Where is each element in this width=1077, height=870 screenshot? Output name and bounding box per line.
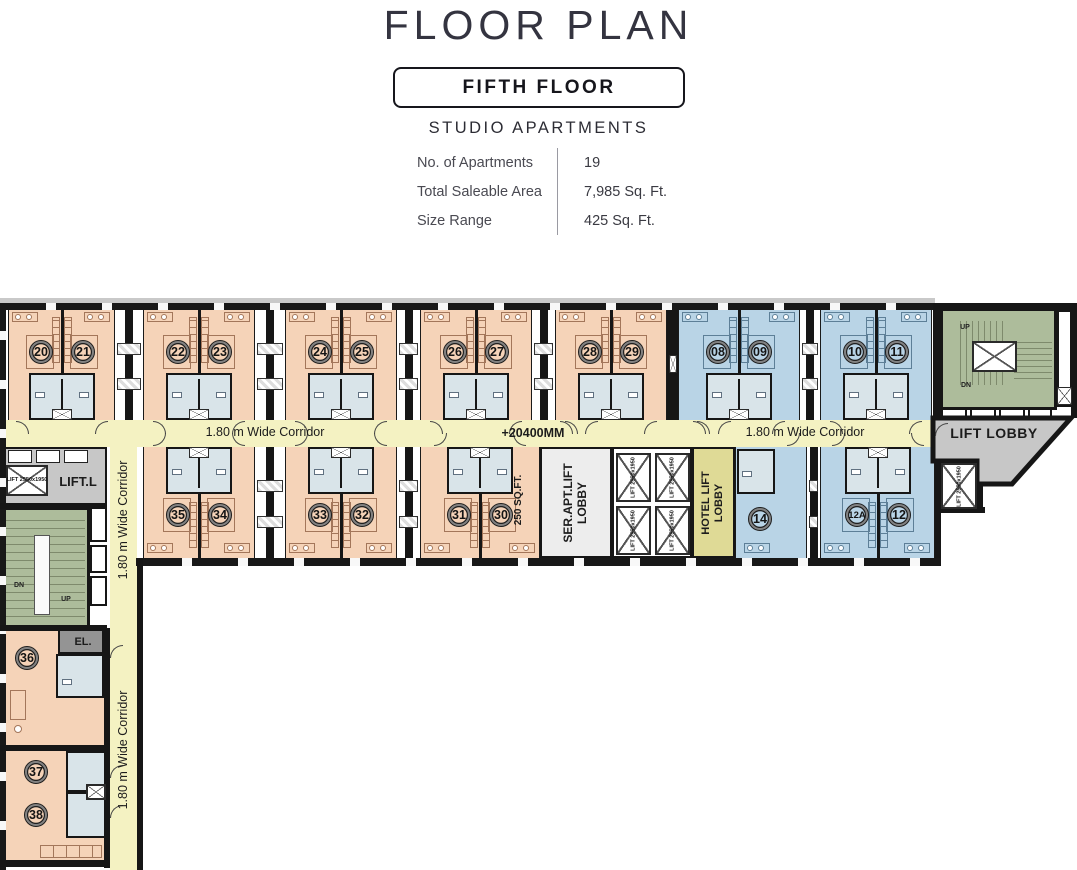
plan-shape xyxy=(712,392,722,398)
plan-shape xyxy=(696,314,702,320)
plan-shape xyxy=(98,314,104,320)
spec-value: 425 Sq. Ft. xyxy=(557,206,667,235)
plan-shape xyxy=(405,447,413,558)
lift-shaft xyxy=(189,409,209,420)
lift-shaft xyxy=(972,341,1017,372)
plan-shape xyxy=(399,378,418,390)
floor-label: FIFTH FLOOR xyxy=(462,77,615,99)
plan-shape xyxy=(534,378,553,390)
plan-shape xyxy=(216,469,226,475)
plan-shape xyxy=(40,845,102,858)
room-number-24: 24 xyxy=(308,340,332,364)
plan-shape xyxy=(0,745,107,751)
room-number-21: 21 xyxy=(71,340,95,364)
plan-shape xyxy=(150,314,156,320)
plan-shape xyxy=(493,392,503,398)
spec-table: No. of Apartments 19 Total Saleable Area… xyxy=(417,148,667,235)
spec-value: 19 xyxy=(557,148,667,177)
room-number-23: 23 xyxy=(208,340,232,364)
stair-dn-label-left: DN xyxy=(8,579,30,591)
plan-shape xyxy=(405,310,413,420)
exterior-wall-left xyxy=(0,303,6,870)
plan-shape xyxy=(809,480,818,492)
room-number-22: 22 xyxy=(166,340,190,364)
plan-shape xyxy=(303,314,309,320)
room-number-27: 27 xyxy=(485,340,509,364)
spec-value: 7,985 Sq. Ft. xyxy=(557,177,667,206)
plan-shape xyxy=(172,392,182,398)
plan-shape xyxy=(685,314,691,320)
plan-shape xyxy=(512,545,518,551)
plan-shape xyxy=(827,314,833,320)
plan-shape xyxy=(907,545,913,551)
plan-shape xyxy=(918,545,924,551)
plan-shape xyxy=(650,314,656,320)
exterior-wall-top xyxy=(0,303,940,310)
plan-shape xyxy=(758,545,764,551)
plan-shape xyxy=(117,343,141,355)
room-number-35: 35 xyxy=(166,503,190,527)
plan-shape xyxy=(756,392,766,398)
plan-shape xyxy=(257,378,283,390)
room-number-10: 10 xyxy=(843,340,867,364)
spec-label: Size Range xyxy=(417,206,557,235)
plan-shape xyxy=(438,314,444,320)
plan-shape xyxy=(0,860,110,867)
spec-label: No. of Apartments xyxy=(417,148,557,177)
spec-label: Total Saleable Area xyxy=(417,177,557,206)
floor-plan: 1.80 m Wide Corridor +20400MM 1.80 m Wid… xyxy=(0,295,1077,870)
plan-shape xyxy=(893,392,903,398)
plan-shape xyxy=(904,314,910,320)
stair-up-label-left: UP xyxy=(55,593,77,605)
room-number-30: 30 xyxy=(489,503,513,527)
lift-shaft xyxy=(466,409,486,420)
room-number-25: 25 xyxy=(350,340,374,364)
plan-shape xyxy=(137,558,143,870)
room-number-29: 29 xyxy=(620,340,644,364)
lift-shaft xyxy=(868,447,888,458)
plan-shape xyxy=(87,314,93,320)
plan-shape xyxy=(534,343,553,355)
plan-shape xyxy=(369,545,375,551)
ser-apt-line1: SER.APT.LIFT xyxy=(562,463,576,542)
lift-shaft xyxy=(669,355,677,373)
corridor-label-right: 1.80 m Wide Corridor xyxy=(725,423,885,441)
plan-shape xyxy=(64,450,88,463)
room-number-34: 34 xyxy=(208,503,232,527)
plan-shape xyxy=(216,392,226,398)
plan-shape xyxy=(161,314,167,320)
plan-shape xyxy=(257,516,283,528)
room-number-26: 26 xyxy=(443,340,467,364)
plan-shape xyxy=(438,545,444,551)
lift-shaft xyxy=(331,447,351,458)
plan-shape xyxy=(35,392,45,398)
plan-shape xyxy=(266,310,274,420)
plan-shape xyxy=(303,545,309,551)
plan-shape xyxy=(809,516,818,528)
plan-shape xyxy=(380,314,386,320)
plan-shape xyxy=(540,310,548,420)
plan-shape xyxy=(257,343,283,355)
room-number-14: 14 xyxy=(748,507,772,531)
plan-shape xyxy=(90,507,107,542)
plan-shape xyxy=(0,625,107,631)
stair-dn-label-right: DN xyxy=(955,379,977,391)
plan-shape xyxy=(117,378,141,390)
plan-shape xyxy=(26,314,32,320)
hotel-line1: HOTEL LIFT xyxy=(700,471,713,534)
room-number-33: 33 xyxy=(308,503,332,527)
plan-shape xyxy=(150,545,156,551)
lift-l-label: LIFT.L xyxy=(50,471,106,491)
room-number-31: 31 xyxy=(447,503,471,527)
hotel-line2: LOBBY xyxy=(713,484,726,523)
plan-shape xyxy=(238,314,244,320)
plan-shape xyxy=(562,314,568,320)
plan-shape xyxy=(639,314,645,320)
plan-shape xyxy=(292,314,298,320)
ser-apt-line2: LOBBY xyxy=(576,482,590,524)
plan-shape xyxy=(573,314,579,320)
corridor-label-left: 1.80 m Wide Corridor xyxy=(185,423,345,441)
plan-shape xyxy=(584,392,594,398)
plan-shape xyxy=(227,314,233,320)
plan-shape xyxy=(62,679,72,685)
plan-shape xyxy=(747,545,753,551)
ser-apt-lift-lobby-label: SER.APT.LIFT LOBBY xyxy=(561,443,591,563)
plan-shape xyxy=(292,545,298,551)
plan-shape xyxy=(802,378,818,390)
lift-shaft xyxy=(86,784,106,800)
plan-shape xyxy=(358,469,368,475)
plan-shape xyxy=(257,480,283,492)
plan-shape xyxy=(125,310,133,420)
lift-size-label: LIFT 2550x1950 xyxy=(955,465,964,507)
lift-shaft xyxy=(1057,387,1072,405)
plan-shape xyxy=(628,392,638,398)
lift-size-label: LIFT 2550x1950 xyxy=(6,476,48,485)
plan-shape xyxy=(15,314,21,320)
plan-shape xyxy=(14,725,22,733)
plan-shape xyxy=(838,545,844,551)
plan-shape xyxy=(161,545,167,551)
plan-shape xyxy=(523,545,529,551)
lift-shaft xyxy=(601,409,621,420)
plan-shape xyxy=(449,392,459,398)
plan-shape xyxy=(933,303,1071,310)
plan-shape xyxy=(1014,337,1052,383)
plan-shape xyxy=(783,314,789,320)
page-title: FLOOR PLAN xyxy=(0,2,1077,49)
corridor-label-vertical-lower: 1.80 m Wide Corridor xyxy=(116,690,130,810)
plan-shape xyxy=(427,545,433,551)
plan-shape xyxy=(227,545,233,551)
plan-shape xyxy=(806,310,814,420)
plan-shape xyxy=(314,469,324,475)
plan-shape xyxy=(838,314,844,320)
plan-shape xyxy=(515,314,521,320)
plan-shape xyxy=(56,654,104,698)
plan-shape xyxy=(8,450,32,463)
plan-shape xyxy=(172,469,182,475)
lift-shaft xyxy=(470,447,490,458)
lift-size-label: LIFT 2550x1950 xyxy=(629,456,638,498)
plan-shape xyxy=(933,310,941,420)
plan-shape xyxy=(90,545,107,573)
hotel-lift-lobby-label: HOTEL LIFT LOBBY xyxy=(698,443,728,563)
unit-area-label: 250 SQ.FT. xyxy=(512,465,524,535)
corridor-label-vertical-upper: 1.80 m Wide Corridor xyxy=(116,460,130,580)
corridor-dimension-label: +20400MM xyxy=(453,424,613,442)
room-number-12A: 12A xyxy=(845,503,869,527)
room-number-32: 32 xyxy=(350,503,374,527)
lift-size-label: LIFT 2550x1950 xyxy=(668,456,677,498)
room-number-36: 36 xyxy=(15,646,39,670)
plan-shape xyxy=(810,447,818,558)
plan-shape xyxy=(34,535,50,615)
plan-shape xyxy=(238,545,244,551)
plan-shape xyxy=(266,447,274,558)
floor-selector-box[interactable]: FIFTH FLOOR xyxy=(393,67,685,108)
plan-shape xyxy=(895,469,905,475)
room-number-11: 11 xyxy=(885,340,909,364)
header: FLOOR PLAN FIFTH FLOOR STUDIO APARTMENTS… xyxy=(0,0,1077,295)
lift-lobby-label: LIFT LOBBY xyxy=(936,424,1052,442)
plan-shape xyxy=(36,450,60,463)
plan-shape xyxy=(772,314,778,320)
plan-shape xyxy=(399,516,418,528)
plan-shape xyxy=(453,469,463,475)
plan-shape xyxy=(915,314,921,320)
room-number-20: 20 xyxy=(29,340,53,364)
lift-shaft xyxy=(729,409,749,420)
lift-shaft xyxy=(331,409,351,420)
plan-shape xyxy=(399,343,418,355)
room-number-12: 12 xyxy=(887,503,911,527)
plan-shape xyxy=(504,314,510,320)
room-number-09: 09 xyxy=(748,340,772,364)
lift-shaft xyxy=(189,447,209,458)
lift-shaft xyxy=(866,409,886,420)
plan-shape xyxy=(358,392,368,398)
plan-shape xyxy=(827,545,833,551)
room-number-28: 28 xyxy=(578,340,602,364)
plan-shape xyxy=(742,471,752,477)
room-number-38: 38 xyxy=(24,803,48,827)
plan-shape xyxy=(851,469,861,475)
plan-shape xyxy=(849,392,859,398)
stair-up-label-right: UP xyxy=(954,321,976,333)
plan-shape xyxy=(79,392,89,398)
lift-shaft xyxy=(52,409,72,420)
plan-shape xyxy=(0,503,107,509)
plan-shape xyxy=(380,545,386,551)
plan-shape xyxy=(314,392,324,398)
el-room-label: EL. xyxy=(62,633,104,651)
room-number-37: 37 xyxy=(24,760,48,784)
plan-shape xyxy=(497,469,507,475)
lift-size-label: LIFT 2550x1950 xyxy=(668,509,677,551)
plan-shape xyxy=(90,576,107,606)
plan-shape xyxy=(10,690,26,720)
room-number-08: 08 xyxy=(706,340,730,364)
plan-shape xyxy=(399,480,418,492)
plan-shape xyxy=(369,314,375,320)
subtitle: STUDIO APARTMENTS xyxy=(0,119,1077,138)
plan-shape xyxy=(427,314,433,320)
lift-size-label: LIFT 2550x1950 xyxy=(629,509,638,551)
plan-shape xyxy=(802,343,818,355)
exterior-wall-bottom xyxy=(136,558,941,566)
